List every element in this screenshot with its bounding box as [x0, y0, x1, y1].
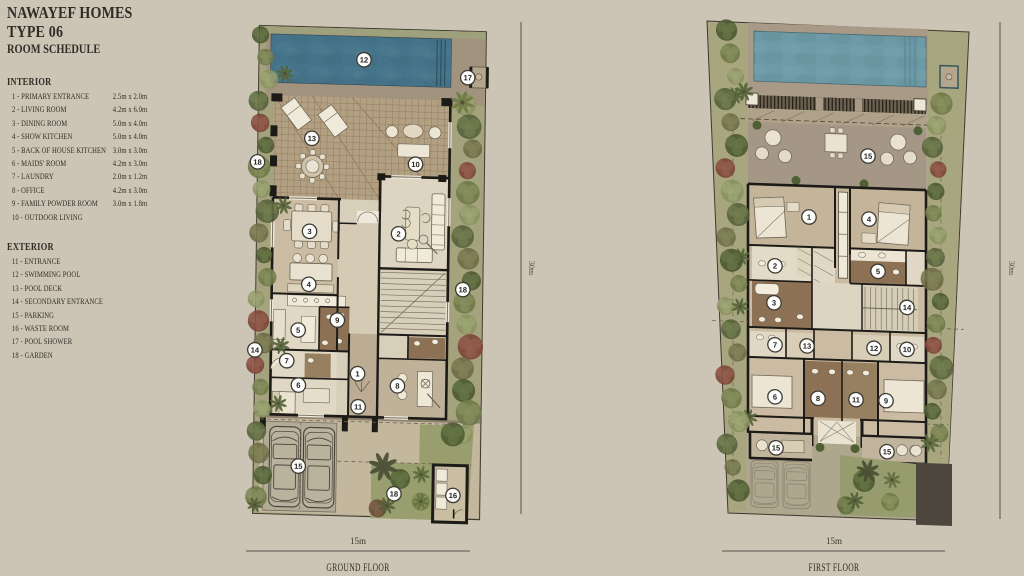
svg-text:15: 15 [772, 443, 781, 452]
svg-text:2: 2 [396, 229, 400, 238]
svg-text:30m: 30m [527, 261, 536, 276]
svg-text:FIRST FLOOR: FIRST FLOOR [809, 562, 860, 575]
svg-text:12: 12 [870, 344, 878, 353]
svg-text:13: 13 [803, 342, 811, 351]
svg-text:12: 12 [360, 55, 369, 64]
svg-text:8: 8 [816, 394, 820, 403]
svg-text:7: 7 [285, 356, 289, 365]
svg-text:GROUND FLOOR: GROUND FLOOR [326, 562, 389, 575]
svg-text:10: 10 [903, 345, 911, 354]
svg-text:13: 13 [308, 134, 317, 143]
svg-text:3: 3 [772, 298, 776, 307]
svg-text:6: 6 [296, 381, 300, 390]
svg-text:3: 3 [307, 227, 311, 236]
svg-text:16: 16 [449, 491, 458, 500]
svg-text:11: 11 [852, 395, 861, 404]
svg-text:10: 10 [411, 160, 420, 169]
svg-text:14: 14 [903, 303, 912, 312]
svg-text:6: 6 [773, 392, 777, 401]
svg-text:9: 9 [884, 396, 888, 405]
svg-text:15m: 15m [826, 536, 842, 546]
svg-text:18: 18 [459, 285, 468, 294]
svg-text:8: 8 [395, 382, 399, 391]
svg-text:14: 14 [251, 345, 260, 354]
svg-text:15: 15 [883, 447, 892, 456]
svg-text:15: 15 [864, 152, 873, 161]
svg-text:15m: 15m [350, 536, 366, 546]
svg-text:18: 18 [253, 157, 262, 166]
svg-text:2: 2 [773, 261, 777, 270]
svg-text:11: 11 [354, 402, 363, 411]
svg-text:18: 18 [390, 489, 399, 498]
svg-text:17: 17 [463, 73, 472, 82]
svg-text:7: 7 [773, 340, 777, 349]
svg-text:30m: 30m [1007, 261, 1016, 276]
svg-text:9: 9 [335, 316, 339, 325]
svg-text:15: 15 [294, 462, 303, 471]
